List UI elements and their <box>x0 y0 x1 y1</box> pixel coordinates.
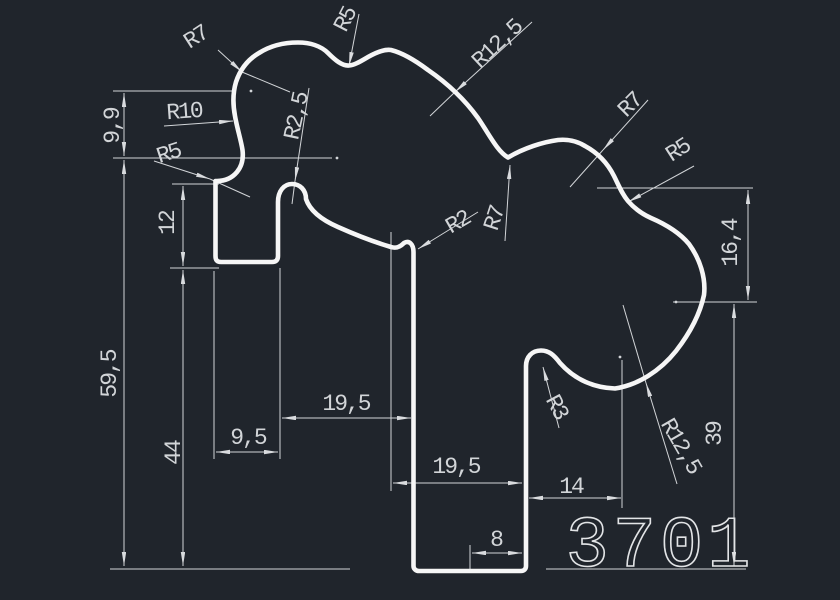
reference-point <box>675 301 678 304</box>
reference-point <box>336 157 339 160</box>
dim-label-16-4: 16,4 <box>718 218 744 266</box>
reference-point <box>619 356 622 359</box>
dim-label-8: 8 <box>490 527 503 553</box>
dim-label-12: 12 <box>155 210 181 235</box>
dim-label-19-5-upper: 19,5 <box>322 391 370 417</box>
dim-label-44: 44 <box>161 440 187 465</box>
radius-label-r10: R10 <box>166 98 204 126</box>
cad-canvas[interactable]: 9,9 59,5 12 44 9,5 19,5 19,5 8 14 16,4 3… <box>0 0 840 600</box>
dim-label-59-5: 59,5 <box>97 349 123 397</box>
dim-label-19-5-lower: 19,5 <box>432 454 480 480</box>
dim-label-14: 14 <box>559 474 584 500</box>
dim-label-9-5: 9,5 <box>230 425 267 451</box>
dim-label-9-9: 9,9 <box>100 107 126 144</box>
dim-label-39: 39 <box>702 421 728 446</box>
part-number: 3701 <box>566 506 755 588</box>
reference-point <box>250 90 253 93</box>
cad-viewport[interactable]: 9,9 59,5 12 44 9,5 19,5 19,5 8 14 16,4 3… <box>0 0 840 600</box>
